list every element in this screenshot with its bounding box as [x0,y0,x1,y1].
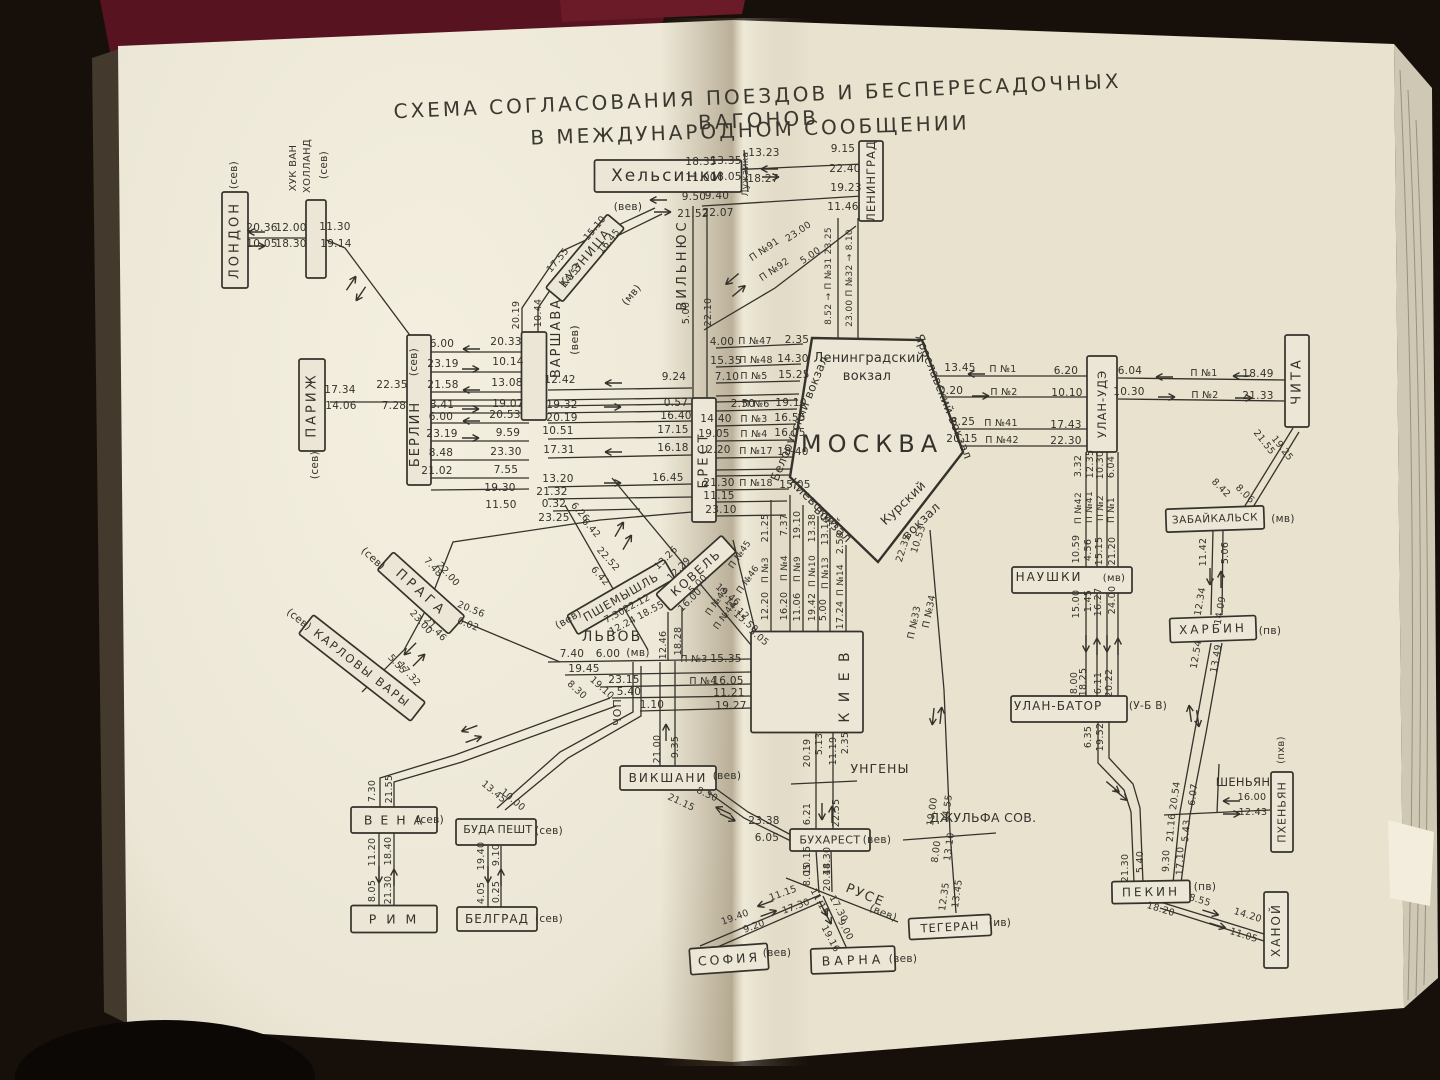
time-label: 12.42 [544,374,576,386]
railway-code-label: (вев) [568,325,581,355]
railway-code-label: (вев) [889,953,918,965]
train-number-label: П №18 [739,478,773,489]
time-label: 5.43 [1180,819,1193,842]
time-label: 21.20 [1107,537,1118,566]
train-number-label: П №2 [990,387,1017,398]
time-label: 6.00 [429,411,454,423]
time-label: 9.59 [496,427,521,439]
city-label: ПХЕНЬЯН [1276,781,1289,843]
station-label: ВАРШАВА [549,298,564,378]
time-label: 11.42 [1198,538,1209,567]
station-label: МОСКВА [801,430,943,458]
time-label: 16.00 [1238,792,1267,803]
time-label: 17.31 [543,444,575,456]
time-label: 15.15 [1094,537,1105,566]
time-label: 5.13 [814,733,825,755]
railway-code-label: (сев) [318,151,330,179]
time-label: 11.46 [827,201,859,213]
time-label: 17.10 [1175,846,1187,875]
time-label: 16.45 [652,472,684,484]
time-label: 6.04 [1118,365,1143,377]
time-label: 9.40 [705,190,730,202]
time-label: 24.00 [1107,586,1118,615]
time-label: 23.15 [608,674,640,686]
train-number-label: П №4 [780,555,790,581]
time-label: 13.38 [807,514,818,543]
time-label: 20.33 [490,336,522,348]
train-number-label: П №41 [1085,491,1095,523]
time-label: 16.40 [660,410,692,422]
train-number-label: П №5 [740,371,767,382]
city-box-zabaikalsk: ЗАБАЙКАЛЬСК [1166,506,1265,532]
city-box-sofia: СОФИЯ [689,943,769,974]
time-label: 10.30 [1095,451,1106,480]
time-label: 8.25 [951,416,976,428]
train-number-label: П №4 [740,429,767,440]
city-box-paris: ПАРИЖ [299,359,325,451]
time-label: 19.05 [698,428,730,440]
time-label: 4.00 [710,336,735,348]
time-label: 15.35 [710,355,742,367]
time-label: 8.41 [430,399,455,411]
time-label: 11.50 [485,499,517,511]
time-label: 17.34 [324,384,356,396]
train-number-label: П №3 [761,557,771,583]
time-label: 10.14 [492,356,524,368]
time-label: 20.53 [489,409,521,421]
train-number-label: П №3 [740,414,767,425]
railway-code-label: (сев) [535,825,563,837]
time-label: 9.30 [1161,850,1173,873]
time-label: 7.10 [715,371,740,383]
time-label: 16.05 [712,675,744,687]
time-label: 7.55 [494,464,519,476]
city-box-hanoi: ХАНОЙ [1264,892,1288,968]
book-photo: ЛОНДОНХельсинкиЛЕНИНГРАДКУЗНИЦАПАРИЖБРЕС… [0,0,1440,1080]
city-label: ПАРИЖ [305,372,320,437]
time-label: 13.20 [542,473,574,485]
time-label: 8.48 [429,447,454,459]
city-box-belgrade: БЕЛГРАД [457,907,537,931]
city-label: ПЕКИН [1122,884,1180,899]
train-number-label: П №2 [1191,390,1218,401]
railway-code-label: (вев) [763,947,792,959]
time-label: 19.40 [476,842,487,871]
train-number-label: П №1 [1190,368,1217,379]
train-number-label: П №1 [1107,497,1117,523]
time-label: 12.43 [1239,807,1268,818]
time-label: 9.10 [491,844,502,866]
time-label: 12.46 [658,631,669,660]
time-label: 18.05 [710,171,742,183]
station-label: ХУК ВАН [288,145,299,192]
city-label: ВАРНА [821,951,884,968]
time-label: 14.06 [325,400,357,412]
time-label: 12.20 [699,444,731,456]
time-label: 14.40 [700,413,732,425]
time-label: 12.00 [275,222,307,234]
time-label: 6.00 [596,648,621,660]
time-label: 20.19 [802,739,813,768]
time-label: 4.56 [1083,539,1094,561]
time-label: 11.20 [367,838,378,867]
city-label: БУХАРЕСТ [799,834,860,847]
time-label: 22.10 [703,298,714,327]
time-label: 13.14 [820,517,831,546]
time-label: 23.38 [748,815,780,827]
railway-code-label: (сев) [416,814,444,826]
time-label: 23.25 [538,512,570,524]
time-label: 17.15 [657,424,689,436]
station-label: ХОЛЛАНД [302,139,313,193]
time-label: 21.00 [652,735,663,764]
station-label: Ленинградский [813,351,924,366]
time-label: 7.28 [382,400,407,412]
time-label: 20.19 [511,301,522,330]
train-number-label: П №13 [821,557,831,589]
time-label: 3.32 [1073,455,1084,477]
city-label: ЛЕНИНГРАД [864,140,878,222]
time-label: 21.58 [427,379,459,391]
time-label: 4.05 [476,882,487,904]
train-number-label: П №3 [680,654,707,665]
time-label: 0.20 [939,385,964,397]
train-number-label: П №42 [1074,492,1084,524]
railway-code-label: (пв) [1194,881,1216,893]
railway-code-label: (вев) [614,201,643,213]
time-label: 17.24 [835,601,846,630]
time-label: 9.15 [831,143,856,155]
time-label: 0.32 [542,498,567,510]
train-number-label: П №48 [739,355,773,366]
time-label: 5.06 [1220,542,1231,564]
time-label: 5.00 [818,599,829,621]
time-label: 11.15 [703,490,735,502]
time-label: 5.00 [681,302,692,324]
railway-code-label: (мв) [1103,573,1125,584]
city-box-pyongyang: ПХЕНЬЯН [1271,772,1293,852]
time-label: 2.35 [785,334,810,346]
train-number-label: П №41 [984,418,1018,429]
time-label: 13.35 [710,155,742,167]
railway-code-label: (мв) [1271,513,1295,525]
time-label: 11.19 [828,737,839,766]
city-box-tehran: ТЕГЕРАН [909,914,992,939]
time-label: 19.32 [546,399,578,411]
city-box-warszawa [522,332,547,420]
city-box-london: ЛОНДОН [222,192,248,288]
time-label: 7.37 [779,514,790,536]
time-label: 19.27 [715,700,747,712]
photo-canvas: ЛОНДОНХельсинкиЛЕНИНГРАДКУЗНИЦАПАРИЖБРЕС… [0,0,1440,1080]
time-label: 20.19 [546,412,578,424]
railway-code-label: (У-Б В) [1129,700,1167,712]
city-label: ХАНОЙ [1268,903,1283,957]
time-label: 8.52 → П №31 23.25 [824,227,834,325]
station-label: ШЕНЬЯН [1216,775,1271,789]
time-label: 13.08 [491,377,523,389]
time-label: 18.28 [673,627,684,656]
railway-code-label: (сев) [228,161,240,189]
time-label: 6.11 [1093,672,1104,694]
time-label: 15.25 [778,369,810,381]
train-number-label: П №2 [1096,495,1106,521]
city-label: Р И М [369,912,420,927]
time-label: 5.40 [617,686,642,698]
time-label: 6.35 [1083,726,1094,748]
time-label: 9.50 [682,191,707,203]
city-box-leningrad: ЛЕНИНГРАД [859,140,883,222]
station-label: ВИЛЬНЮС [675,219,690,310]
time-label: 1.10 [640,699,665,711]
time-label: 17.43 [1050,419,1082,431]
time-label: 23.19 [426,428,458,440]
time-label: 20.22 [1104,669,1115,698]
time-label: 15.00 [1071,590,1082,619]
station-label: УЛАН-БАТОР [1014,699,1102,713]
time-label: 23.10 [705,504,737,516]
time-label: 6.21 [802,803,813,825]
time-label: 19.52 [1095,723,1106,752]
time-label: 6.05 [755,832,780,844]
station-label: вокзал [843,369,891,384]
railway-code-label: (сев) [309,451,321,479]
railway-code-label: (мв) [626,647,650,659]
time-label: 22.07 [702,207,734,219]
time-label: 5.40 [1135,851,1146,873]
train-number-label: П №42 [985,435,1019,446]
time-label: 21.55 [384,775,395,804]
time-label: 13.23 [748,147,780,159]
time-label: 2.50 [835,532,846,554]
city-box-ulan-ude: УЛАН-УДЭ [1087,356,1117,452]
station-label: УНГЕНЫ [851,761,910,776]
time-label: 23.19 [427,358,459,370]
time-label: 16.20 [779,592,790,621]
time-label: 6.20 [1054,365,1079,377]
time-label: 2.35 [840,732,851,754]
time-label: 21.30 [703,477,735,489]
time-label: 18.40 [383,837,394,866]
time-label: 19.45 [568,663,600,675]
time-label: 14.30 [777,353,809,365]
railway-code-label: (пхв) [1276,736,1287,764]
time-label: 21.30 [1120,854,1131,883]
time-label: 16.18 [657,442,689,454]
time-label: 0.57 [664,397,689,409]
station-label: БУДА [463,823,495,836]
time-label: 22.40 [829,163,861,175]
railway-code-label: (вев) [713,770,742,782]
city-label: ЧИТА [1290,357,1305,404]
torn-page-corner [1388,820,1434,906]
time-label: 18.25 [1078,668,1089,697]
train-number-label: П №9 [793,556,803,582]
station-label: БЕРЛИН [408,401,423,467]
time-label: 18.30 [275,238,307,250]
train-number-label: П №17 [739,446,773,457]
time-label: 12.20 [760,592,771,621]
railway-code-label: (вев) [863,834,892,846]
time-label: 8.05 [802,864,813,886]
station-label: НАУШКИ [1016,570,1083,584]
station-label: К И Е В [837,649,853,722]
time-label: 15.35 [710,653,742,665]
time-label: 9.35 [670,736,681,758]
time-label: 21.32 [536,486,568,498]
time-label: 20.44 [822,863,833,892]
train-number-label: П №1 [989,364,1016,375]
time-label: 21.30 [383,876,394,905]
time-label: 23.00 П №32 → 8.10 [845,229,855,327]
railway-code-label: (сев) [535,913,563,925]
railway-code-label: (ив) [989,917,1011,929]
time-label: 6.04 [1106,456,1117,478]
city-label: ЛОНДОН [228,201,243,279]
time-label: 11.21 [713,687,745,699]
time-label: 19.30 [484,482,516,494]
time-label: 18.49 [1242,368,1274,380]
time-label: 9.24 [662,371,687,383]
time-label: 11.06 [792,593,803,622]
city-box-varna: ВАРНА [811,946,896,974]
time-label: 19.42 [807,593,818,622]
city-box-chita: ЧИТА [1285,335,1309,427]
time-label: 19.23 [830,182,862,194]
city-box-rome: Р И М [351,906,437,933]
time-label: 7.30 [367,780,378,802]
time-label: 10.30 [1113,386,1145,398]
train-number-label: П №14 [836,564,846,596]
time-label: 10.59 [1071,535,1082,564]
time-label: 6.00 [430,338,455,350]
railway-code-label: (пв) [1259,625,1281,637]
time-label: 19.10 [792,511,803,540]
time-label: 19.14 [320,238,352,250]
station-label: ЧОП [611,698,624,725]
city-box-outline [522,332,547,420]
train-number-label: П №6 [742,399,769,410]
time-label: 22.30 [1050,435,1082,447]
railway-code-label: (сев) [408,348,420,376]
time-label: 20.15 [946,433,978,445]
time-label: 10.10 [1051,387,1083,399]
time-label: 7.40 [560,648,585,660]
time-label: 23.30 [490,446,522,458]
time-label: 10.44 [533,299,544,328]
time-label: 16.27 [1093,588,1104,617]
train-number-label: П №10 [808,555,818,587]
city-label: УЛАН-УДЭ [1095,370,1109,438]
train-number-label: П №47 [738,336,772,347]
time-label: 8.05 [367,880,378,902]
time-label: 21.02 [421,465,453,477]
time-label: 10.51 [542,425,574,437]
station-label: ЛЬВОВ [582,629,642,645]
station-label: ПЕШТ [498,823,533,836]
city-label: БЕЛГРАД [465,912,529,926]
time-label: 21.25 [760,514,771,543]
time-label: 22.35 [376,379,408,391]
city-label: ВИКШАНИ [629,771,708,785]
time-label: 11.30 [319,221,351,233]
